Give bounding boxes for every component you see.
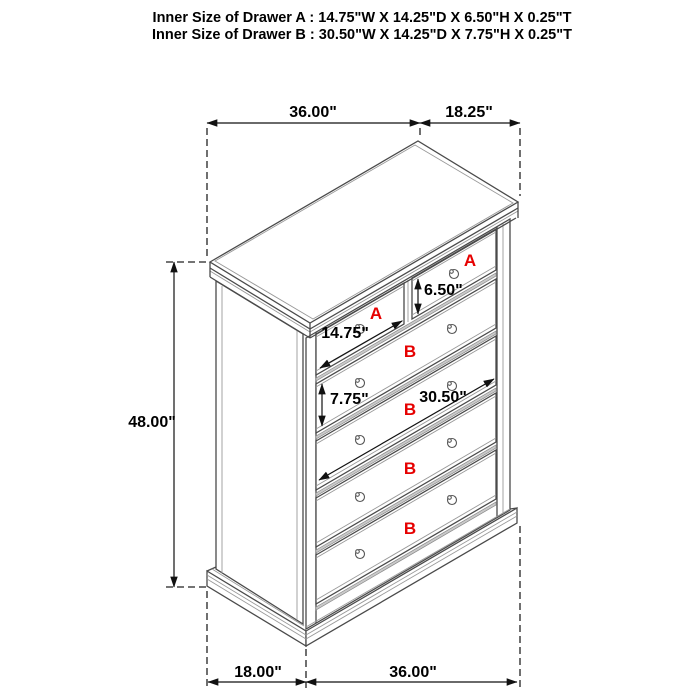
knob-b2-left-highlight [356, 436, 360, 440]
label-bottom-width: 36.00" [389, 664, 437, 681]
label-bottom-depth: 18.00" [234, 664, 282, 681]
knob-b4-left-highlight [356, 550, 360, 554]
label-top-depth: 18.25" [445, 104, 493, 121]
knob-b1-left-highlight [356, 379, 360, 383]
header-line-drawer-b: Inner Size of Drawer B : 30.50"W X 14.25… [152, 27, 572, 43]
knob-b3-left-highlight [356, 493, 360, 497]
header-line-drawer-a: Inner Size of Drawer A : 14.75"W X 14.25… [153, 10, 572, 26]
label-top-width: 36.00" [289, 104, 337, 121]
knob-a2-highlight [450, 270, 454, 274]
label-height: 48.00" [128, 414, 176, 431]
label-drawer-b3: B [404, 459, 416, 478]
knob-b4-right-highlight [448, 496, 452, 500]
knob-b2-right-highlight [448, 382, 452, 386]
diagram-svg: Inner Size of Drawer A : 14.75"W X 14.25… [0, 0, 700, 700]
knob-b3-right-highlight [448, 439, 452, 443]
knob-b1-right-highlight [448, 325, 452, 329]
label-drawer-a1: A [370, 304, 382, 323]
label-drawer-a-height: 6.50" [424, 282, 463, 299]
label-drawer-b1: B [404, 342, 416, 361]
label-drawer-b4: B [404, 519, 416, 538]
label-drawer-a-width: 14.75" [321, 325, 369, 342]
left-side-panel [216, 281, 303, 624]
label-drawer-a2: A [464, 251, 476, 270]
label-drawer-b-width: 30.50" [419, 389, 467, 406]
furniture-dimension-diagram: Inner Size of Drawer A : 14.75"W X 14.25… [0, 0, 700, 700]
label-drawer-b-height: 7.75" [330, 391, 369, 408]
label-drawer-b2: B [404, 400, 416, 419]
